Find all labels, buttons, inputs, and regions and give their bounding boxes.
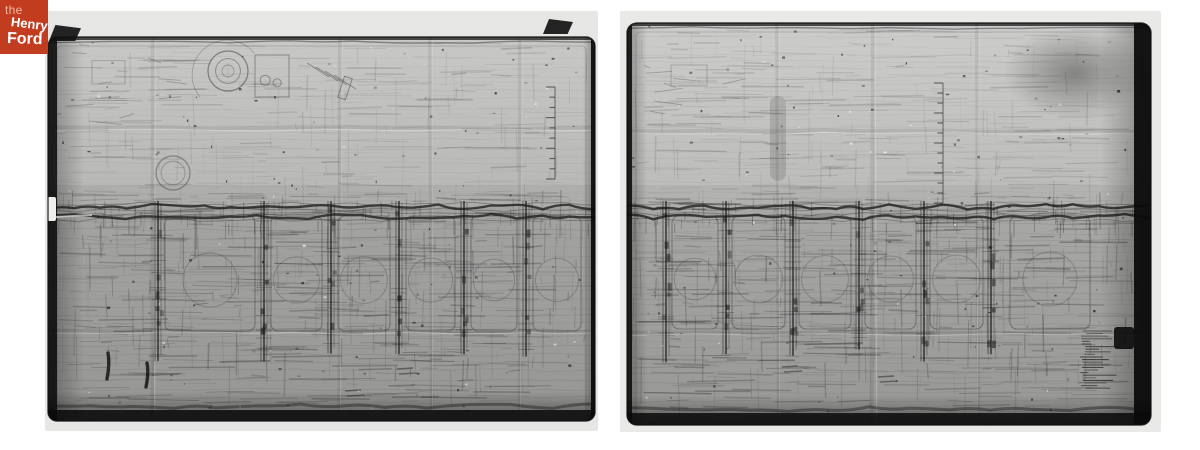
blueprint-photo-left (45, 11, 598, 431)
drawing-sheet (627, 23, 1153, 426)
logo-text-ford: Ford (7, 30, 43, 48)
blueprint-photo-right (620, 11, 1161, 432)
drawing-sheet (48, 37, 598, 423)
henry-ford-logo: the Henry Ford (0, 0, 48, 54)
edge-tab (1114, 327, 1134, 349)
page-background: the Henry Ford (0, 0, 1200, 450)
